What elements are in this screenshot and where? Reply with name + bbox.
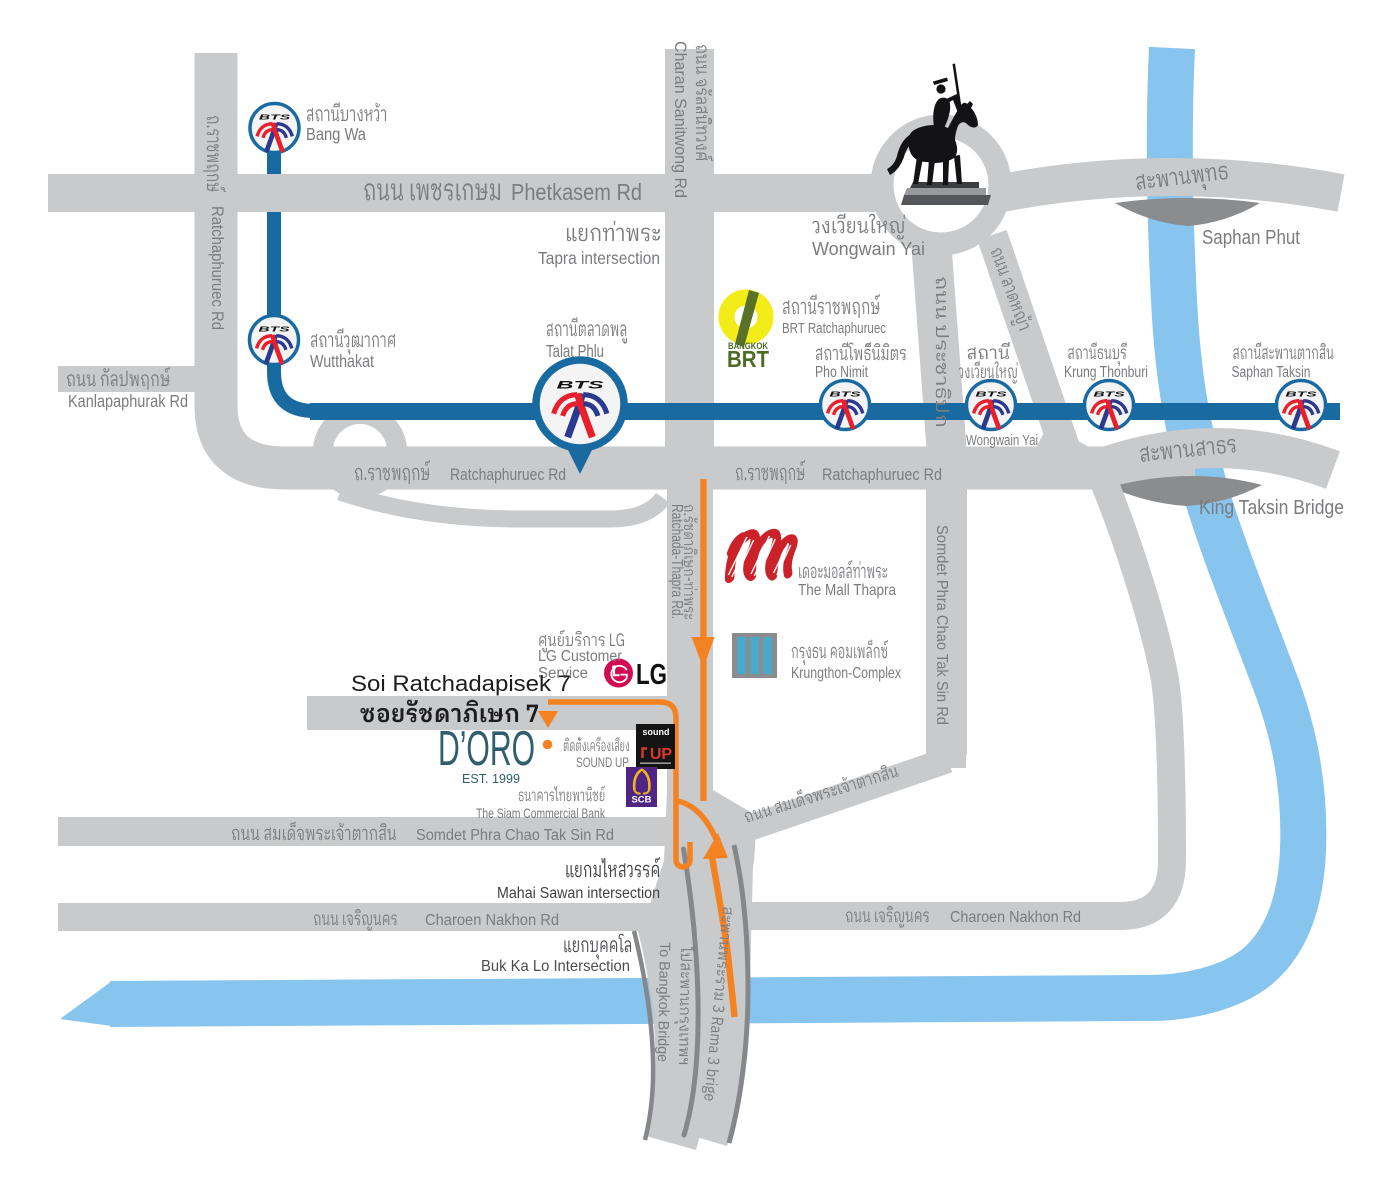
svg-text:The Mall Thapra: The Mall Thapra (798, 582, 896, 599)
svg-text:Ratchaphuruec Rd: Ratchaphuruec Rd (822, 465, 942, 484)
svg-text:Saphan Taksin: Saphan Taksin (1232, 364, 1311, 381)
svg-text:Kanlapaphurak Rd: Kanlapaphurak Rd (68, 391, 188, 411)
svg-text:Saphan Phut: Saphan Phut (1202, 227, 1300, 249)
svg-text:EST. 1999: EST. 1999 (462, 771, 520, 786)
svg-text:Wongwain Yai: Wongwain Yai (812, 239, 925, 259)
svg-text:Soi Ratchadapisek 7: Soi Ratchadapisek 7 (351, 671, 571, 696)
svg-text:Wongwain Yai: Wongwain Yai (966, 433, 1038, 449)
svg-text:Somdet Phra Chao Tak Sin Rd: Somdet Phra Chao Tak Sin Rd (933, 525, 950, 725)
svg-text:The Siam Commercial Bank: The Siam Commercial Bank (476, 805, 606, 821)
svg-text:sound: sound (643, 727, 670, 737)
svg-text:BRT Ratchaphuruec: BRT Ratchaphuruec (782, 321, 886, 337)
svg-text:LG Customer: LG Customer (538, 648, 622, 665)
svg-text:UP: UP (650, 746, 673, 763)
svg-text:Buk Ka Lo Intersection: Buk Ka Lo Intersection (481, 958, 630, 975)
svg-text:Somdet Phra Chao Tak Sin Rd: Somdet Phra Chao Tak Sin Rd (416, 827, 614, 844)
svg-text:Ratchaphuruec Rd: Ratchaphuruec Rd (208, 206, 227, 330)
svg-text:D’ORO: D’ORO (438, 722, 535, 776)
svg-text:Talat Phlu: Talat Phlu (546, 341, 604, 361)
svg-text:Krung Thonburi: Krung Thonburi (1064, 364, 1148, 381)
svg-text:BRT: BRT (727, 346, 769, 372)
svg-text:Krungthon-Complex: Krungthon-Complex (791, 665, 901, 682)
svg-text:Mahai Sawan intersection: Mahai Sawan intersection (497, 885, 660, 902)
svg-text:Phetkasem Rd: Phetkasem Rd (511, 179, 642, 205)
svg-text:LG: LG (636, 659, 667, 691)
svg-text:Bang Wa: Bang Wa (306, 124, 366, 144)
svg-text:To Bangkok Bridge: To Bangkok Bridge (654, 942, 673, 1062)
svg-text:SOUND UP: SOUND UP (576, 755, 629, 770)
svg-text:Tapra intersection: Tapra intersection (538, 248, 660, 268)
svg-text:King Taksin Bridge: King Taksin Bridge (1199, 497, 1344, 519)
svg-text:SCB: SCB (631, 795, 651, 806)
svg-text:Wutthakat: Wutthakat (310, 351, 374, 371)
svg-text:Ratchada-Thapra Rd.: Ratchada-Thapra Rd. (668, 504, 685, 619)
svg-text:Charoen Nakhon Rd: Charoen Nakhon Rd (950, 909, 1081, 926)
svg-text:Ratchaphuruec Rd: Ratchaphuruec Rd (450, 466, 566, 484)
svg-text:Charan Sanitwong Rd: Charan Sanitwong Rd (671, 41, 689, 198)
svg-text:Pho Nimit: Pho Nimit (815, 364, 869, 381)
svg-text:Charoen Nakhon Rd: Charoen Nakhon Rd (425, 912, 559, 929)
